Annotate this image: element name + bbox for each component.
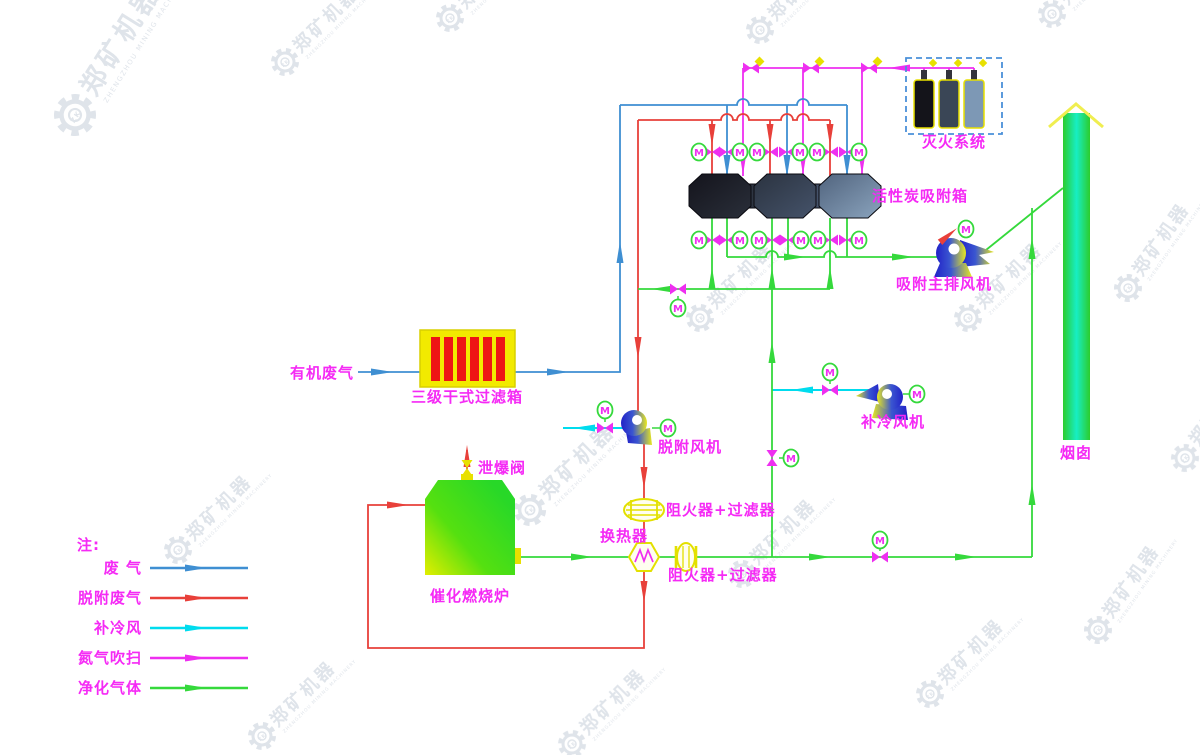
fan-hub: [632, 415, 642, 425]
legend-item-label: 氮气吹扫: [78, 649, 142, 667]
motor-actuator-icon: [671, 300, 686, 317]
flow-arrow-icon: [185, 625, 207, 632]
motor-actuator-icon: [794, 232, 809, 249]
label-relief-valve: 泄爆阀: [478, 459, 526, 477]
label-organic-waste-gas: 有机废气: [290, 364, 354, 382]
carbon-box-2: [754, 174, 816, 218]
flow-arrow-icon: [185, 565, 207, 572]
blue-manifold: [620, 99, 847, 105]
legend-item-label: 净化气体: [78, 679, 142, 697]
label-flame-arrester-2: 阻火器+过滤器: [668, 566, 778, 584]
flow-arrow-icon: [827, 124, 834, 146]
watermark: [1036, 0, 1148, 33]
flow-arrow-icon: [571, 554, 593, 561]
flame-arrester-1: [624, 499, 664, 521]
valve-icon: [743, 63, 759, 74]
watermark: [556, 651, 668, 755]
nitrogen-arrows-valves: [740, 57, 911, 175]
legend-item-label: 脱附废气: [78, 589, 142, 607]
valve-icon: [670, 284, 686, 295]
legend: 注: 废 气 脱附废气 补冷风 氮气吹扫 净化气体: [77, 536, 248, 697]
cylinder-tag-diamond: [954, 59, 962, 67]
watermark: [162, 457, 274, 569]
flow-arrow-icon: [892, 254, 914, 261]
watermark: [1169, 353, 1200, 476]
watermark: [51, 0, 189, 141]
flow-arrow-icon: [709, 267, 716, 289]
watermark: [1082, 525, 1180, 648]
watermark: [269, 0, 381, 81]
label-fire-system: 灭火系统: [921, 133, 986, 151]
fan-hub: [882, 389, 892, 399]
label-chimney: 烟囱: [1060, 444, 1092, 462]
flow-arrow-icon: [1029, 483, 1036, 505]
motor-actuator-icon: [852, 232, 867, 249]
motor-actuator-icon: [959, 221, 974, 238]
label-desorption-fan: 脱附风机: [658, 438, 722, 456]
relief-valve-icon: [462, 460, 473, 476]
watermark: [1112, 183, 1200, 306]
fire-suppression-system: [906, 58, 1002, 134]
valve-icon: [861, 63, 877, 74]
flow-arrow-icon: [767, 124, 774, 146]
motor-actuator-icon: [784, 450, 799, 467]
main-exhaust-fan: [934, 221, 994, 278]
label-main-fan: 吸附主排风机: [896, 275, 992, 293]
label-flame-arrester-1: 阻火器+过滤器: [666, 501, 776, 519]
flow-arrow-icon: [641, 467, 648, 489]
diagram-canvas: M ZK 郑矿机器 ZHENGZHOU MINING MACHINERY: [0, 0, 1200, 755]
flow-arrow-icon: [809, 554, 831, 561]
flow-arrow-icon: [641, 581, 648, 603]
motor-actuator-icon: [823, 364, 838, 381]
filter-box: [420, 330, 515, 387]
carbon-adsorption-boxes: [689, 174, 881, 218]
motor-actuator-icon: [692, 144, 707, 161]
furnace-body: [425, 480, 515, 575]
cylinder-tag-diamond: [929, 59, 937, 67]
fan-outlet: [856, 384, 880, 402]
watermarks: [51, 0, 1200, 755]
flow-arrow-icon: [371, 369, 393, 376]
flow-arrow-icon: [185, 655, 207, 662]
label-filter-box: 三级干式过滤箱: [411, 388, 523, 406]
watermark: [434, 0, 546, 37]
flow-arrow-icon: [827, 267, 834, 289]
label-cooling-fan: 补冷风机: [860, 413, 925, 431]
fan-to-chimney-line: [986, 188, 1063, 250]
gas-cylinder-1: [914, 80, 934, 128]
label-heat-exchanger: 换热器: [600, 527, 648, 545]
flow-arrow-icon: [784, 254, 806, 261]
heat-exchanger: [629, 543, 659, 571]
label-furnace: 催化燃烧炉: [430, 587, 510, 605]
cooling-arrows-valves: [573, 364, 838, 434]
flow-arrow-icon: [709, 124, 716, 146]
carbon-box-1: [689, 174, 751, 218]
flow-arrow-icon: [651, 286, 673, 293]
motor-actuator-icon: [910, 386, 925, 403]
motor-actuator-icon: [873, 532, 888, 549]
chimney-stack: [1063, 113, 1090, 440]
watermark: [246, 643, 358, 755]
riser-line: [515, 105, 620, 372]
label-adsorption-box: 活性炭吸附箱: [872, 187, 968, 205]
legend-item-label: 补冷风: [93, 619, 142, 637]
valve-icon: [872, 552, 888, 563]
motor-actuator-icon: [661, 420, 676, 437]
motor-actuator-icon: [810, 144, 825, 161]
flow-arrow-icon: [573, 425, 595, 432]
valve-icon: [822, 385, 838, 396]
chimney: [1049, 104, 1103, 440]
red-manifold: [638, 114, 830, 120]
fan-hub: [949, 244, 960, 255]
motor-actuator-icon: [752, 232, 767, 249]
flow-arrow-icon: [185, 685, 207, 692]
gas-cylinder-2: [939, 80, 959, 128]
motor-actuator-icon: [733, 232, 748, 249]
motor-actuator-icon: [793, 144, 808, 161]
motor-actuator-icon: [852, 144, 867, 161]
flow-arrow-icon: [617, 241, 624, 263]
valve-icon: [767, 450, 778, 466]
flow-arrow-icon: [185, 595, 207, 602]
watermark: [914, 601, 1026, 713]
watermark: [744, 0, 856, 49]
process-flow-diagram: M ZK 郑矿机器 ZHENGZHOU MINING MACHINERY: [0, 0, 1200, 755]
motor-actuator-icon: [692, 232, 707, 249]
flow-arrow-icon: [791, 387, 813, 394]
gas-cylinder-3: [964, 80, 984, 128]
furnace-vent-nozzle: [461, 474, 473, 480]
motor-actuator-icon: [750, 144, 765, 161]
motor-actuator-icon: [733, 144, 748, 161]
motor-actuator-icon: [811, 232, 826, 249]
flow-arrow-icon: [955, 554, 977, 561]
catalytic-furnace: [425, 474, 521, 575]
motor-actuator-icon: [598, 402, 613, 419]
furnace-outlet-nozzle: [514, 548, 521, 564]
flow-arrow-icon: [387, 502, 409, 509]
watermark: [512, 404, 640, 532]
flow-arrow-icon: [635, 337, 642, 359]
cylinder-tag-diamond: [979, 59, 987, 67]
valve-icon: [803, 63, 819, 74]
legend-item-label: 废 气: [104, 559, 142, 577]
flow-arrow-icon: [769, 341, 776, 363]
flow-arrow-icon: [547, 369, 569, 376]
legend-title: 注:: [77, 536, 100, 554]
